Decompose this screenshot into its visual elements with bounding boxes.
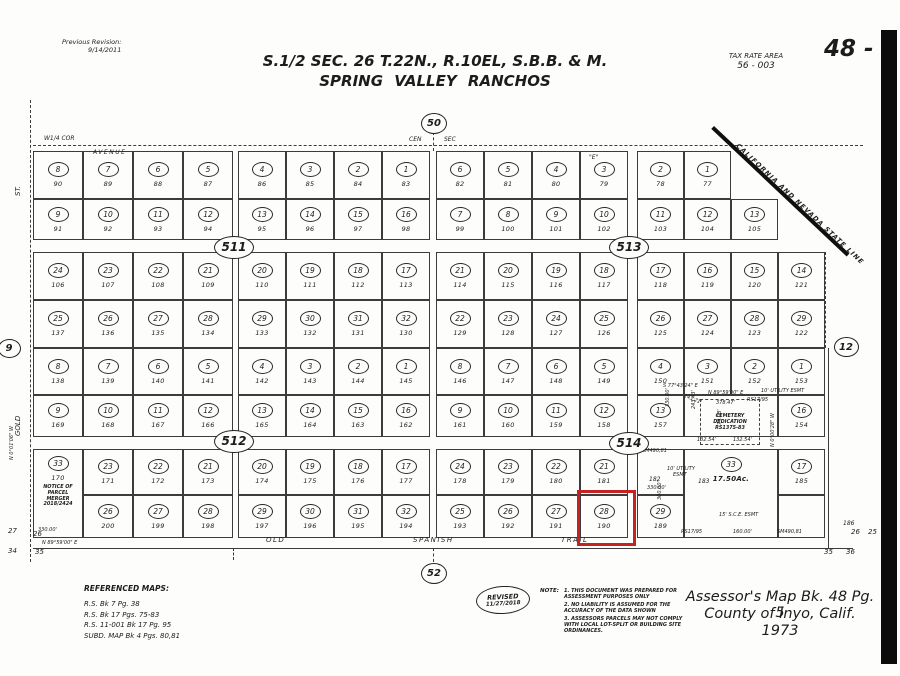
parcel-circle: 25 — [450, 504, 471, 519]
map-annotation: 330.00' — [665, 388, 671, 407]
parcel-circle: 31 — [348, 504, 369, 519]
parcel-number: 115 — [501, 281, 514, 289]
parcel-cell: 17113 — [382, 252, 430, 300]
parcel-cell: 21109 — [183, 252, 233, 300]
map-annotation: N 89°59'00" E — [42, 540, 77, 546]
parcel-cell: 20115 — [484, 252, 532, 300]
parcel-cell: 24127 — [532, 300, 580, 348]
parcel-cell: 10168 — [83, 395, 133, 437]
parcel-cell: 19111 — [286, 252, 334, 300]
parcel-circle: 6 — [546, 359, 567, 374]
section-marker: 50 — [421, 113, 447, 134]
parcel-cell: 13165 — [238, 395, 286, 437]
parcel-circle: 21 — [594, 459, 615, 474]
parcel-cell: 28198 — [183, 495, 233, 538]
parcel-cell: 183 — [382, 151, 430, 199]
parcel-number: 179 — [501, 477, 514, 485]
map-annotation: ST. — [14, 186, 22, 196]
parcel-cell: 19175 — [286, 449, 334, 495]
parcel-number: 152 — [748, 377, 761, 385]
parcel-circle: 28 — [198, 311, 219, 326]
parcel-merger-notice: NOTICE OFPARCELMERGER2018/2424 — [43, 485, 73, 508]
parcel-number: 146 — [453, 377, 466, 385]
parcel-number: 120 — [748, 281, 761, 289]
parcel-circle: 30 — [300, 504, 321, 519]
parcel-cell: 1092 — [83, 199, 133, 240]
parcel-circle: 27 — [546, 504, 567, 519]
parcel-circle: 9 — [450, 403, 471, 418]
parcel-circle: 16 — [396, 207, 417, 222]
parcel-cell: 8100 — [484, 199, 532, 240]
parcel-circle: 1 — [396, 359, 417, 374]
parcel-cell: 26200 — [83, 495, 133, 538]
parcel-cell: 10102 — [580, 199, 628, 240]
parcel-number: 191 — [549, 522, 562, 530]
parcel-circle: 11 — [650, 207, 671, 222]
parcel-number: 122 — [795, 329, 808, 337]
parcel-circle: 21 — [450, 263, 471, 278]
map-annotation: N 89°59'00" E — [708, 390, 743, 396]
boundary-line — [433, 548, 434, 562]
parcel-cell: 11159 — [532, 395, 580, 437]
parcel-cell: 26136 — [83, 300, 133, 348]
parcel-circle: 33 — [721, 457, 742, 472]
parcel-cell: 8138 — [33, 348, 83, 395]
parcel-cell: 25137 — [33, 300, 83, 348]
parcel-cell: 26192 — [484, 495, 532, 538]
parcel-cell: 29133 — [238, 300, 286, 348]
parcel-circle: 15 — [744, 263, 765, 278]
parcel-circle: 21 — [198, 459, 219, 474]
parcel-cell: 16162 — [382, 395, 430, 437]
map-annotation: "E" — [589, 154, 598, 161]
parcel-number: 106 — [51, 281, 64, 289]
boundary-line — [233, 548, 234, 560]
parcel-number: 141 — [201, 377, 214, 385]
parcel-circle: 20 — [252, 459, 273, 474]
parcel-number: 80 — [552, 180, 561, 188]
parcel-circle: 16 — [791, 403, 812, 418]
parcel-circle: 21 — [198, 263, 219, 278]
map-annotation: 132.54' — [697, 437, 716, 443]
parcel-circle: 6 — [148, 162, 169, 177]
map-annotation: ESMT — [673, 472, 687, 478]
map-annotation: 132.54' — [733, 437, 752, 443]
parcel-cell: 27191 — [532, 495, 580, 538]
parcel-circle: 17 — [396, 459, 417, 474]
parcel-circle: 3 — [697, 359, 718, 374]
parcel-cell: 18112 — [334, 252, 382, 300]
parcel-cell: 1193 — [133, 199, 183, 240]
parcel-cell: 28134 — [183, 300, 233, 348]
parcel-circle: 8 — [48, 162, 69, 177]
parcel-circle: 23 — [498, 311, 519, 326]
map-annotation: N 0°00'28" W — [770, 413, 776, 447]
boundary-line — [433, 132, 434, 151]
parcel-circle: 16 — [396, 403, 417, 418]
parcel-cell: 29197 — [238, 495, 286, 538]
parcel-cell: 28123 — [731, 300, 778, 348]
parcel-cell: 6140 — [133, 348, 183, 395]
referenced-map-line: R.S. Bk 17 Pgs. 75-83 — [84, 610, 180, 621]
section-marker: 52 — [421, 563, 447, 584]
parcel-cell-large: 3317.50Ac. — [684, 449, 778, 538]
parcel-circle: 30 — [300, 311, 321, 326]
parcel-circle: 7 — [98, 359, 119, 374]
parcel-cell: 379 — [580, 151, 628, 199]
map-annotation: AVENUE — [93, 149, 126, 156]
parcel-number: 131 — [351, 329, 364, 337]
parcel-cell: 21181 — [580, 449, 628, 495]
map-annotation: GOLD — [14, 416, 22, 436]
parcel-cell: 16119 — [684, 252, 731, 300]
parcel-number: 116 — [549, 281, 562, 289]
parcel-number: 157 — [654, 421, 667, 429]
parcel-circle: 2 — [650, 162, 671, 177]
parcel-number: 195 — [351, 522, 364, 530]
parcel-cell: 27124 — [684, 300, 731, 348]
parcel-circle: 27 — [148, 504, 169, 519]
parcel-circle: 9 — [48, 207, 69, 222]
map-annotation: N 0°01'06" W — [9, 426, 15, 460]
map-annotation: 10' UTILITY ESMT — [761, 388, 804, 394]
map-annotation: 26 — [851, 528, 860, 536]
map-annotation: 26 — [33, 530, 42, 538]
parcel-circle: 27 — [148, 311, 169, 326]
parcel-circle: 12 — [594, 403, 615, 418]
boundary-line — [30, 100, 31, 562]
parcel-number: 124 — [701, 329, 714, 337]
parcel-number: 137 — [51, 329, 64, 337]
parcel-cell: 17185 — [778, 449, 825, 495]
parcel-circle: 24 — [48, 263, 69, 278]
map-annotation: SM490,81 — [777, 529, 802, 535]
parcel-circle: 16 — [697, 263, 718, 278]
parcel-cell: 12104 — [684, 199, 731, 240]
parcel-number: 198 — [201, 522, 214, 530]
parcel-circle: 10 — [498, 403, 519, 418]
parcel-number: 143 — [303, 377, 316, 385]
map-annotation: 300.00' — [657, 481, 663, 500]
parcel-cell: 890 — [33, 151, 83, 199]
section-marker: 9 — [0, 339, 21, 358]
map-annotation: 160.00' — [733, 529, 752, 535]
map-annotation: 35 — [824, 548, 833, 556]
parcel-number: 145 — [399, 377, 412, 385]
parcel-circle: 13 — [252, 403, 273, 418]
parcel-cell: 15163 — [334, 395, 382, 437]
parcel-circle: 27 — [697, 311, 718, 326]
parcel-number: 107 — [101, 281, 114, 289]
parcel-number: 83 — [402, 180, 411, 188]
parcel-number: 136 — [101, 329, 114, 337]
parcel-circle: 3 — [594, 162, 615, 177]
parcel-number: 130 — [399, 329, 412, 337]
map-annotation: W1/4 COR — [44, 135, 75, 142]
map-annotation: RS17/95 — [747, 397, 768, 403]
parcel-number: 162 — [399, 421, 412, 429]
parcel-number: 101 — [549, 225, 562, 233]
parcel-circle: 8 — [498, 207, 519, 222]
parcel-circle: 10 — [594, 207, 615, 222]
note-label: NOTE: — [540, 588, 559, 594]
parcel-number: 77 — [703, 180, 712, 188]
scan-artifact-bar — [881, 30, 897, 664]
parcel-number: 180 — [549, 477, 562, 485]
parcel-number: 158 — [597, 421, 610, 429]
parcel-circle: 8 — [450, 359, 471, 374]
parcel-circle: 7 — [498, 359, 519, 374]
parcel-cell: 9161 — [436, 395, 484, 437]
cemetery-dedication-text: RS1375-83 — [715, 425, 745, 431]
map-annotation: 25 — [868, 528, 877, 536]
referenced-maps-title: REFERENCED MAPS: — [84, 584, 169, 593]
referenced-map-line: R.S. 11-001 Bk 17 Pg. 95 — [84, 620, 180, 631]
parcel-number: 92 — [104, 225, 113, 233]
parcel-number: 86 — [258, 180, 267, 188]
parcel-cell: 22172 — [133, 449, 183, 495]
parcel-cell: 1294 — [183, 199, 233, 240]
parcel-number: 85 — [306, 180, 315, 188]
parcel-circle: 22 — [148, 263, 169, 278]
parcel-cell: 24106 — [33, 252, 83, 300]
parcel-cell: 23179 — [484, 449, 532, 495]
parcel-circle: 32 — [396, 504, 417, 519]
parcel-circle: 13 — [744, 207, 765, 222]
parcel-number: 163 — [351, 421, 364, 429]
parcel-number: 127 — [549, 329, 562, 337]
parcel-cell: 32130 — [382, 300, 430, 348]
map-annotation: 15' S.C.E. ESMT — [719, 512, 758, 518]
parcel-circle: 2 — [744, 359, 765, 374]
parcel-number: 114 — [453, 281, 466, 289]
parcel-circle: 8 — [48, 359, 69, 374]
parcel-circle: 14 — [300, 403, 321, 418]
parcel-circle: 9 — [546, 207, 567, 222]
parcel-number: 128 — [501, 329, 514, 337]
parcel-circle: 2 — [348, 359, 369, 374]
map-annotation: 27 — [8, 527, 17, 535]
parcel-circle: 20 — [252, 263, 273, 278]
parcel-cell: 19116 — [532, 252, 580, 300]
parcel-cell: 1698 — [382, 199, 430, 240]
parcel-number: 129 — [453, 329, 466, 337]
parcel-circle: 19 — [300, 263, 321, 278]
parcel-cell: 27199 — [133, 495, 183, 538]
note-item: 3. ASSESSORS PARCELS MAY NOT COMPLY WITH… — [564, 616, 692, 634]
parcel-number: 169 — [51, 421, 64, 429]
parcel-cell: 789 — [83, 151, 133, 199]
parcel-circle: 11 — [148, 403, 169, 418]
parcel-circle: 26 — [650, 311, 671, 326]
parcel-circle: 4 — [252, 359, 273, 374]
parcel-number: 199 — [151, 522, 164, 530]
parcel-cell: 13105 — [731, 199, 778, 240]
parcel-number: 91 — [54, 225, 63, 233]
parcel-cell-merged: 33170NOTICE OFPARCELMERGER2018/2424 — [33, 449, 83, 538]
parcel-number: 167 — [151, 421, 164, 429]
parcel-circle: 29 — [650, 504, 671, 519]
parcel-cell: 18176 — [334, 449, 382, 495]
parcel-number: 88 — [154, 180, 163, 188]
parcel-cell: 177 — [684, 151, 731, 199]
parcel-circle: 26 — [98, 504, 119, 519]
parcel-circle: 26 — [498, 504, 519, 519]
parcel-number: 189 — [654, 522, 667, 530]
map-annotation: 243.43' — [691, 390, 697, 409]
map-annotation: 186 — [843, 520, 854, 527]
parcel-circle: 5 — [198, 162, 219, 177]
parcel-circle: 3 — [300, 359, 321, 374]
parcel-cell: 991 — [33, 199, 83, 240]
referenced-maps-list: R.S. Bk 7 Pg. 38 R.S. Bk 17 Pgs. 75-83 R… — [84, 599, 180, 641]
parcel-circle: 23 — [498, 459, 519, 474]
map-annotation: 183 — [698, 478, 709, 485]
parcel-circle: 4 — [546, 162, 567, 177]
parcel-cell: 3143 — [286, 348, 334, 395]
parcel-cell: 30196 — [286, 495, 334, 538]
boundary-line — [33, 548, 853, 549]
parcel-circle: 1 — [697, 162, 718, 177]
parcel-circle: 18 — [348, 459, 369, 474]
parcel-circle: 7 — [98, 162, 119, 177]
parcel-cell: 27135 — [133, 300, 183, 348]
parcel-number: 200 — [101, 522, 114, 530]
section-marker: 12 — [834, 337, 859, 357]
parcel-number: 154 — [795, 421, 808, 429]
parcel-circle: 1 — [396, 162, 417, 177]
parcel-circle: 26 — [98, 311, 119, 326]
parcel-number: 166 — [201, 421, 214, 429]
parcel-number: 144 — [351, 377, 364, 385]
parcel-number: 79 — [600, 180, 609, 188]
assessor-map-page: { "header": { "previous_revision_label":… — [0, 0, 900, 676]
parcel-circle: 19 — [300, 459, 321, 474]
parcel-cell: 23128 — [484, 300, 532, 348]
parcel-circle: 23 — [98, 459, 119, 474]
parcel-number: 159 — [549, 421, 562, 429]
parcel-number: 173 — [201, 477, 214, 485]
map-annotation: CEN — [409, 136, 421, 143]
parcel-number: 171 — [101, 477, 114, 485]
parcel-circle: 19 — [546, 263, 567, 278]
parcel-number: 172 — [151, 477, 164, 485]
parcel-circle: 12 — [198, 207, 219, 222]
parcel-number: 100 — [501, 225, 514, 233]
parcel-number: 112 — [351, 281, 364, 289]
parcel-cell: 32194 — [382, 495, 430, 538]
map-annotation: SEC — [444, 136, 456, 143]
parcel-cell: 21173 — [183, 449, 233, 495]
parcel-number: 185 — [795, 477, 808, 485]
parcel-circle: 10 — [98, 207, 119, 222]
parcel-number: 138 — [51, 377, 64, 385]
parcel-number: 197 — [255, 522, 268, 530]
map-annotation: 74.08' — [717, 409, 723, 425]
parcel-number: 193 — [453, 522, 466, 530]
parcel-cell: 22180 — [532, 449, 580, 495]
parcel-circle: 22 — [450, 311, 471, 326]
parcel-cell: 688 — [133, 151, 183, 199]
parcel-circle: 1 — [791, 359, 812, 374]
parcel-circle: 24 — [546, 311, 567, 326]
parcel-number: 170 — [51, 474, 64, 482]
parcel-circle: 12 — [697, 207, 718, 222]
parcel-number: 99 — [456, 225, 465, 233]
parcel-cell: 1496 — [286, 199, 334, 240]
parcel-circle: 22 — [546, 459, 567, 474]
parcel-cell: 10160 — [484, 395, 532, 437]
parcel-number: 165 — [255, 421, 268, 429]
parcel-circle: 25 — [48, 311, 69, 326]
parcel-cell: 26125 — [637, 300, 684, 348]
assessor-map-line2: County of Inyo, Calif. — [680, 606, 880, 622]
parcel-circle: 5 — [198, 359, 219, 374]
parcel-circle: 5 — [498, 162, 519, 177]
parcel-number: 174 — [255, 477, 268, 485]
parcel-number: 153 — [795, 377, 808, 385]
map-annotation: OLD — [266, 536, 285, 544]
parcel-number: 133 — [255, 329, 268, 337]
parcel-circle: 13 — [252, 207, 273, 222]
parcel-circle: 4 — [252, 162, 273, 177]
map-annotation: 36 — [846, 548, 855, 556]
parcel-number: 102 — [597, 225, 610, 233]
parcel-cell: 23107 — [83, 252, 133, 300]
parcel-number: 93 — [154, 225, 163, 233]
parcel-number: 148 — [549, 377, 562, 385]
parcel-cell: 14121 — [778, 252, 825, 300]
parcel-cell: 16154 — [778, 395, 825, 437]
map-annotation: RS17/95 — [681, 529, 702, 535]
parcel-number: 109 — [201, 281, 214, 289]
parcel-number: 103 — [654, 225, 667, 233]
parcel-number: 149 — [597, 377, 610, 385]
parcel-circle: 17 — [791, 459, 812, 474]
parcel-number: 89 — [104, 180, 113, 188]
parcel-circle: 24 — [450, 459, 471, 474]
parcel-circle: 29 — [252, 311, 273, 326]
parcel-number: 194 — [399, 522, 412, 530]
parcel-circle: 5 — [594, 359, 615, 374]
parcel-cell: 4142 — [238, 348, 286, 395]
parcel-number: 160 — [501, 421, 514, 429]
parcel-circle: 33 — [48, 456, 69, 471]
parcel-cell: 23171 — [83, 449, 133, 495]
parcel-number: 125 — [654, 329, 667, 337]
parcel-circle: 25 — [594, 311, 615, 326]
parcel-cell: 1395 — [238, 199, 286, 240]
parcel-cell: 25126 — [580, 300, 628, 348]
parcel-acreage: 17.50Ac. — [713, 475, 750, 483]
parcel-number: 117 — [597, 281, 610, 289]
parcel-cell: 20110 — [238, 252, 286, 300]
parcel-cell: 21114 — [436, 252, 484, 300]
boundary-line — [828, 348, 829, 548]
parcel-circle: 32 — [396, 311, 417, 326]
section-marker: 512 — [214, 430, 254, 453]
parcel-cell: 1597 — [334, 199, 382, 240]
parcel-number: 78 — [656, 180, 665, 188]
parcel-cell: 29189 — [637, 495, 684, 538]
parcel-number: 192 — [501, 522, 514, 530]
parcel-number: 121 — [795, 281, 808, 289]
parcel-circle: 11 — [148, 207, 169, 222]
parcel-number: 119 — [701, 281, 714, 289]
parcel-number: 87 — [204, 180, 213, 188]
parcel-cell: 30132 — [286, 300, 334, 348]
parcel-cell: 20174 — [238, 449, 286, 495]
